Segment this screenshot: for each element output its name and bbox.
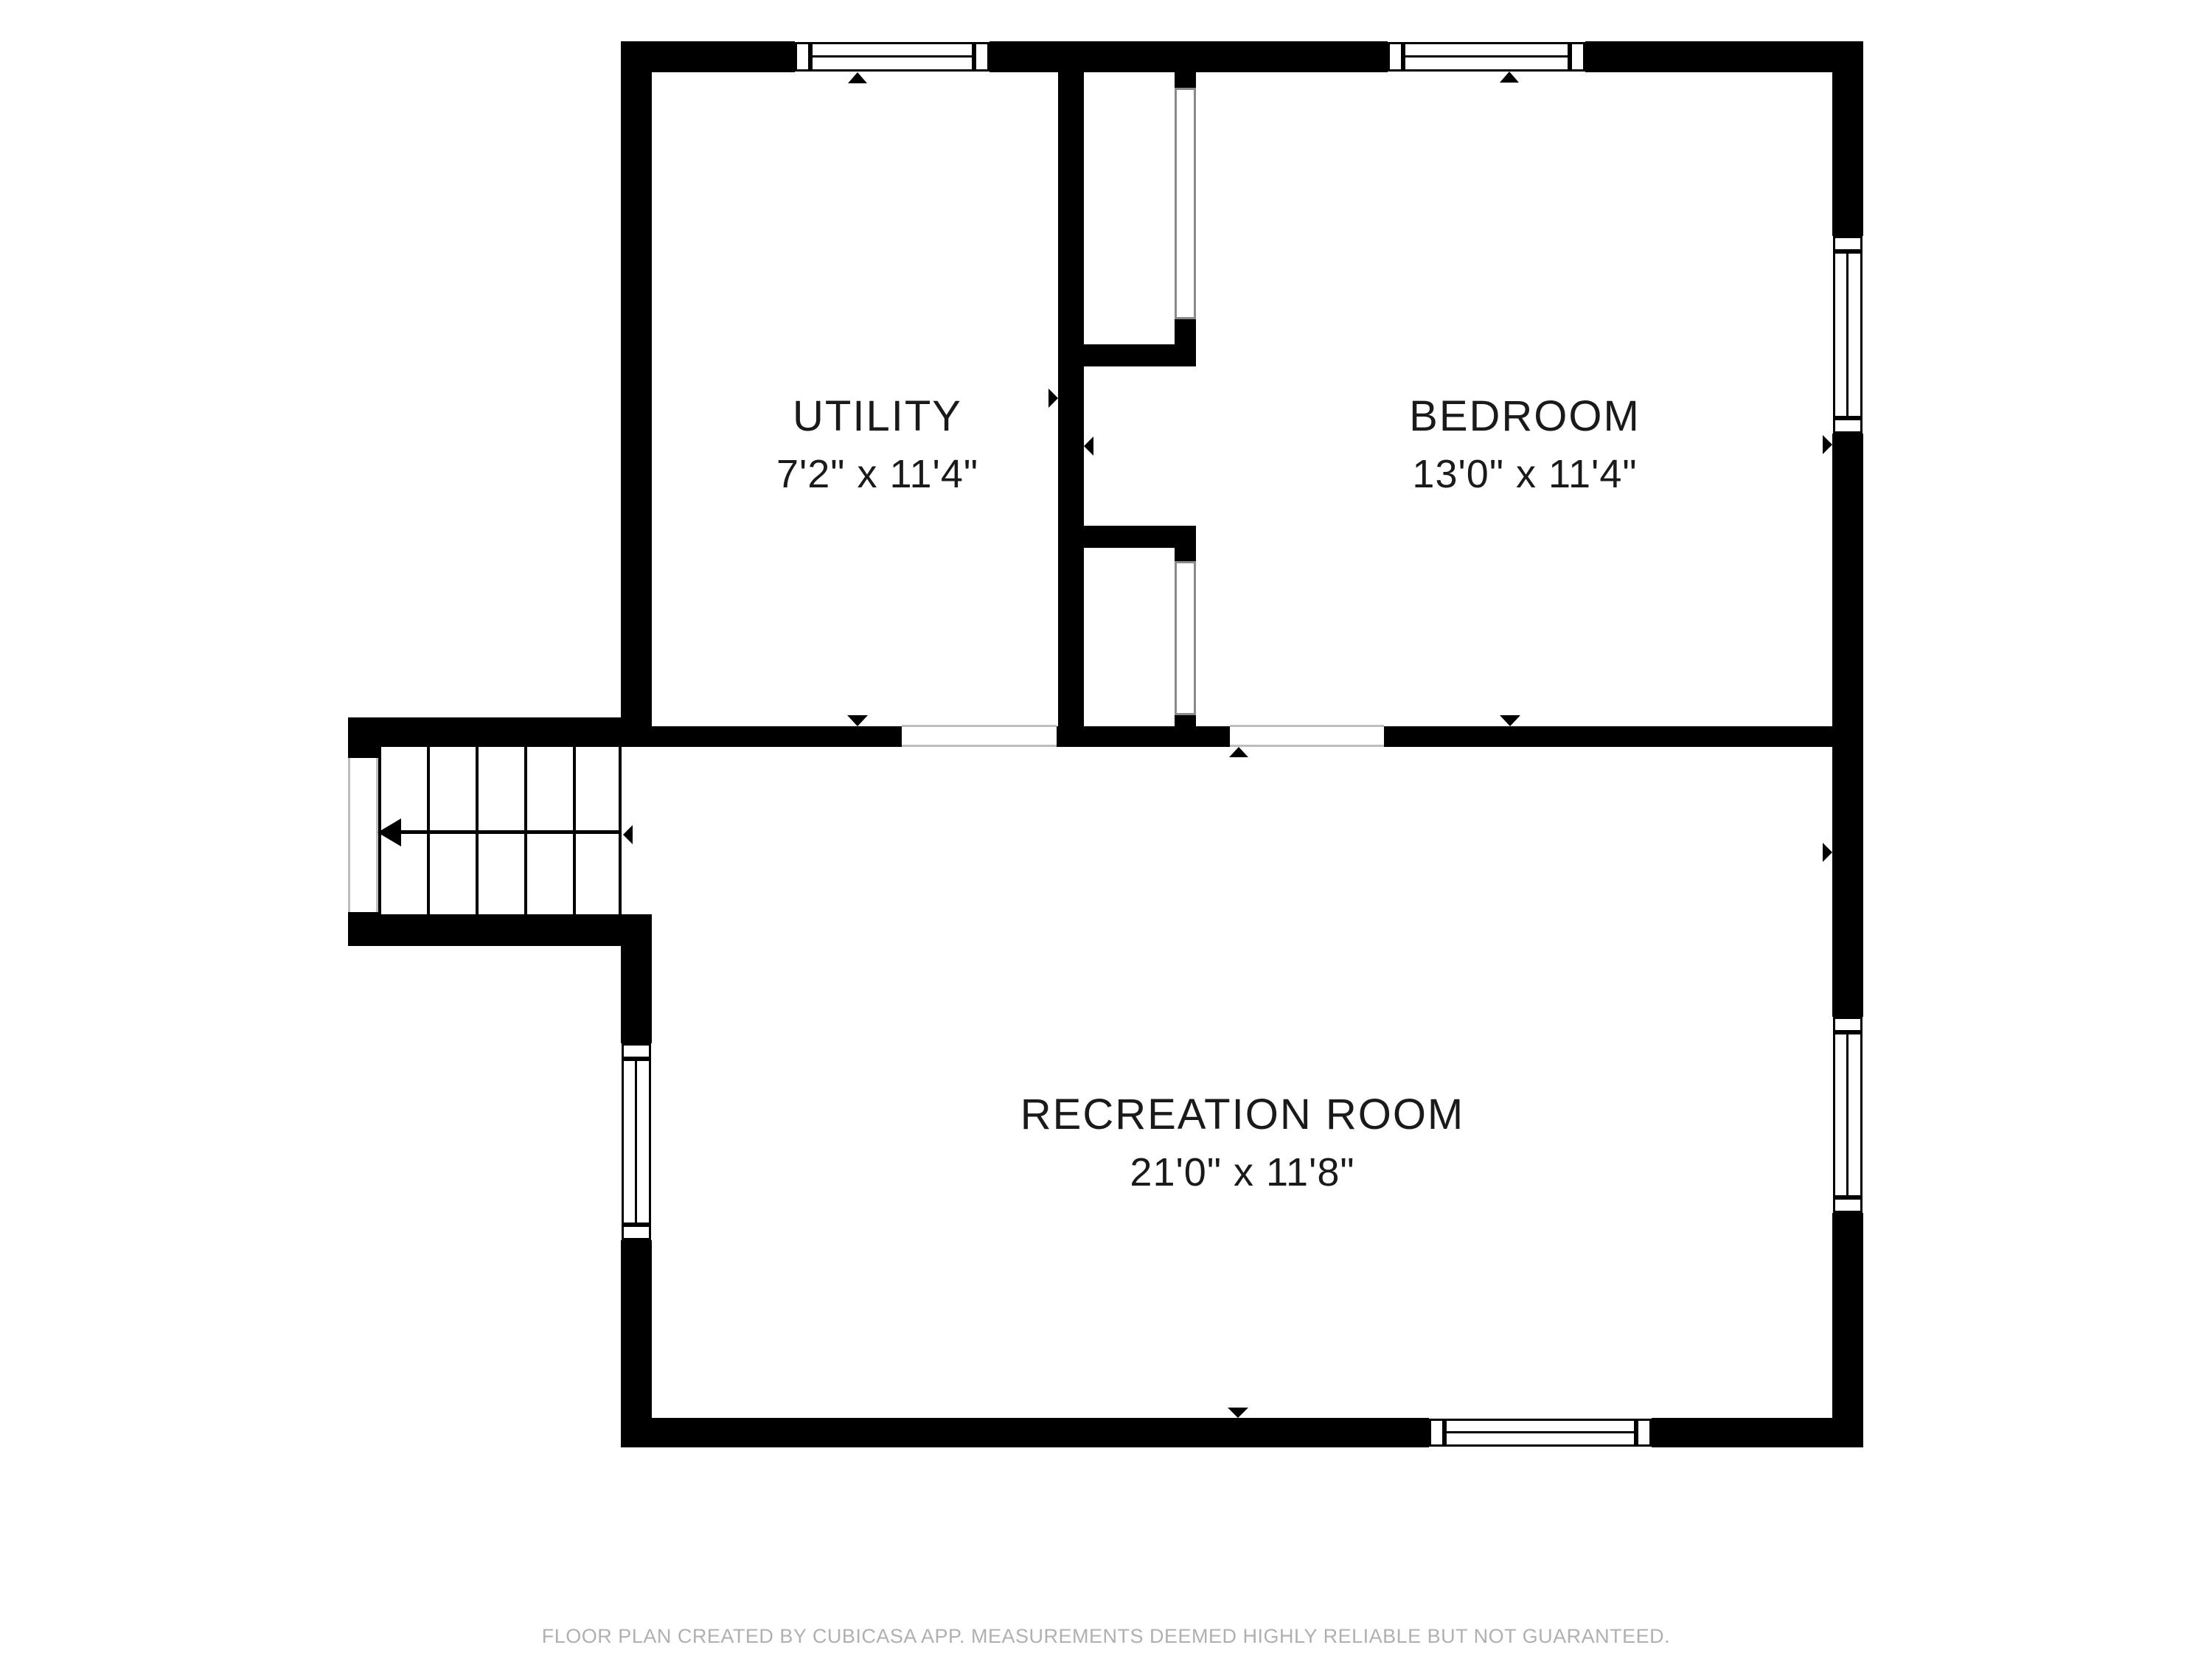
window-top-utility-post-left [795, 42, 810, 72]
marker-recess-wall-icon [1084, 437, 1093, 456]
window-top-utility-post-right [974, 42, 990, 72]
marker-rec-doorway-icon [1229, 747, 1248, 757]
room-name-bedroom: BEDROOM [1409, 388, 1641, 445]
closet-lower-top-wall [1084, 526, 1196, 548]
stairs-wall-left-stub-top [348, 717, 378, 758]
wall-utility-right [1058, 72, 1084, 747]
stairs-wall-top [348, 717, 652, 747]
window-right-rec [1832, 1017, 1863, 1213]
stairs-entry-marker-icon [623, 825, 633, 844]
marker-bedroom-window-icon [1500, 72, 1519, 83]
window-bottom-rec-post-right [1636, 1419, 1652, 1447]
closet-lower-door [1175, 561, 1196, 715]
marker-bedroom-door-icon [1500, 715, 1520, 726]
room-dims-bedroom: 13'0" x 11'4" [1409, 445, 1641, 503]
doorway-bedroom-line-bottom [1230, 745, 1384, 747]
window-top-bedroom-post-right [1570, 42, 1585, 72]
window-left-rec-post-bottom [622, 1225, 651, 1240]
wall-middle-right [1384, 726, 1863, 747]
window-right-bedroom-post-top [1833, 236, 1863, 251]
marker-utility-wall-icon [1048, 389, 1058, 408]
marker-rec-bottom-icon [1228, 1408, 1248, 1418]
window-right-rec-post-bottom [1833, 1197, 1863, 1213]
window-bottom-rec-post-left [1429, 1419, 1444, 1447]
closet-upper-cap-top [1175, 72, 1196, 88]
closet-upper-floor-wall [1084, 344, 1196, 366]
window-top-utility [795, 41, 990, 72]
stairs-arrow-head-icon [378, 818, 401, 846]
window-right-rec-mullion [1846, 1034, 1848, 1195]
window-top-bedroom-mullion [1405, 55, 1568, 58]
window-left-rec [621, 1043, 652, 1240]
room-label-utility: UTILITY 7'2" x 11'4" [776, 388, 978, 503]
wall-left-upper [621, 41, 652, 747]
doorway-bedroom-line-top [1230, 725, 1384, 727]
room-name-recreation: RECREATION ROOM [1020, 1086, 1465, 1144]
window-right-rec-post-top [1833, 1017, 1863, 1032]
stairs-wall-bottom [348, 914, 652, 946]
room-dims-recreation: 21'0" x 11'8" [1020, 1144, 1465, 1201]
doorway-utility-line-bottom [902, 745, 1057, 747]
room-name-utility: UTILITY [776, 388, 978, 445]
window-top-bedroom [1388, 41, 1585, 72]
stairs-open-edge-outer [348, 758, 350, 912]
room-dims-utility: 7'2" x 11'4" [776, 445, 978, 503]
window-right-bedroom [1832, 236, 1863, 434]
marker-rec-right-icon [1823, 843, 1832, 862]
room-label-recreation: RECREATION ROOM 21'0" x 11'8" [1020, 1086, 1465, 1201]
marker-bedroom-right-icon [1823, 435, 1832, 454]
marker-utility-window-icon [848, 72, 867, 83]
doorway-utility-line-top [902, 725, 1057, 727]
window-right-bedroom-mullion [1846, 254, 1848, 416]
floor-plan: UTILITY 7'2" x 11'4" BEDROOM 13'0" x 11'… [0, 0, 2212, 1659]
closet-lower-cap-bottom [1175, 715, 1196, 726]
stairs-arrow-line [400, 830, 621, 834]
marker-utility-door-icon [847, 715, 868, 726]
stairs-wall-left-stub-bottom [348, 912, 378, 946]
window-bottom-rec-mullion [1447, 1431, 1634, 1433]
window-right-bedroom-post-bottom [1833, 418, 1863, 434]
wall-bottom [621, 1418, 1863, 1447]
closet-lower-cap-top [1175, 548, 1196, 561]
window-top-bedroom-post-left [1388, 42, 1403, 72]
window-bottom-rec [1429, 1418, 1652, 1447]
closet-upper-door [1175, 88, 1196, 319]
window-top-utility-mullion [813, 55, 972, 58]
window-left-rec-mullion [635, 1061, 637, 1222]
footer-disclaimer: FLOOR PLAN CREATED BY CUBICASA APP. MEAS… [0, 1625, 2212, 1648]
window-left-rec-post-top [622, 1043, 651, 1059]
wall-middle-left [621, 726, 902, 747]
room-label-bedroom: BEDROOM 13'0" x 11'4" [1409, 388, 1641, 503]
closet-upper-cap-bottom [1175, 319, 1196, 344]
